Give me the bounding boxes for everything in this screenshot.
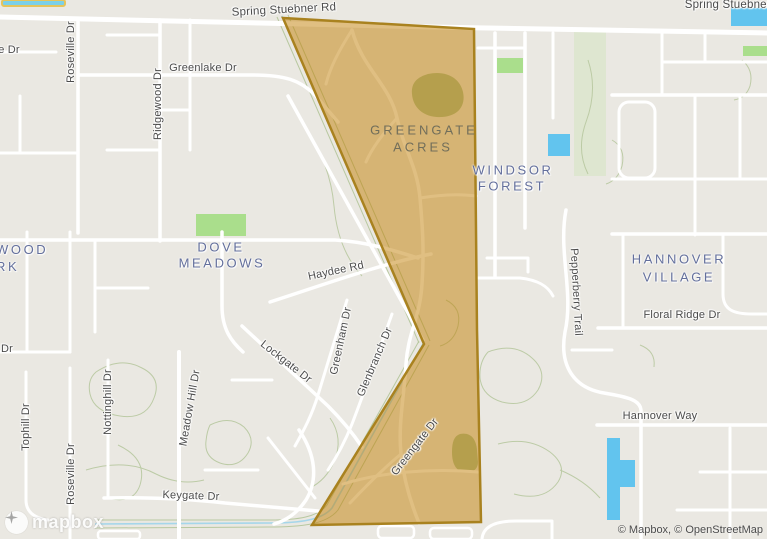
- park-top-right: [743, 46, 767, 56]
- pool-top-left: [2, 0, 65, 6]
- mapbox-logo[interactable]: mapbox: [5, 511, 104, 534]
- forest-band: [574, 30, 606, 176]
- mapbox-logo-icon: [5, 511, 28, 534]
- mapbox-logo-text: mapbox: [32, 512, 104, 533]
- park-windsor: [497, 58, 523, 73]
- mapbox-star-icon: [5, 511, 18, 524]
- water-windsor: [548, 134, 570, 156]
- map-attribution[interactable]: © Mapbox, © OpenStreetMap: [618, 524, 763, 536]
- water-top-right: [731, 8, 767, 26]
- map-canvas[interactable]: Spring Stuebner Rd Spring Stuebner Rd Gr…: [0, 0, 767, 539]
- map-base-layer: [0, 0, 767, 539]
